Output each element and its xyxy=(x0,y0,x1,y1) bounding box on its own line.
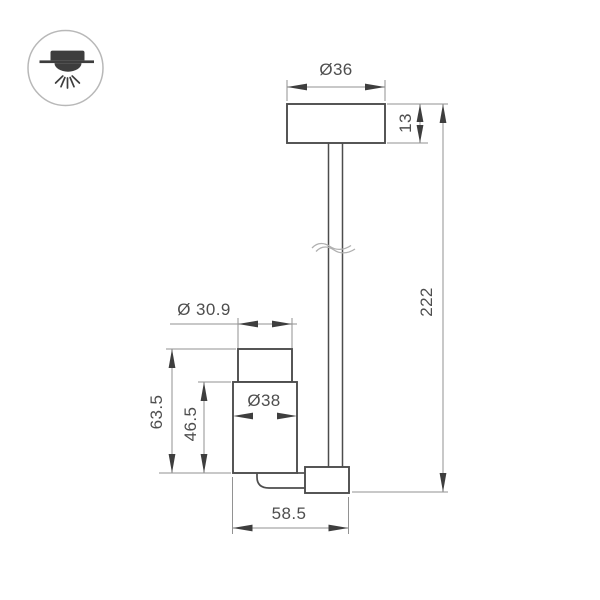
elbow-arm xyxy=(257,473,305,488)
arrow-body-height-bottom xyxy=(201,454,208,473)
arrow-stem-bottom xyxy=(440,473,447,492)
arrow-stem-top xyxy=(440,104,447,123)
arrow-canopy-height-bottom xyxy=(417,125,424,143)
arrow-overall-width-left xyxy=(233,525,253,532)
label-head-overall-height: 63.5 xyxy=(147,395,167,430)
arrow-overall-height-bottom xyxy=(169,454,176,473)
label-head-overall-width: 58.5 xyxy=(272,504,307,524)
label-head-body-height: 46.5 xyxy=(181,407,201,442)
arrow-canopy-left xyxy=(287,84,307,91)
ceiling-light-icon xyxy=(28,31,103,106)
label-canopy-diameter: Ø36 xyxy=(319,60,352,80)
icon-lamp-dome xyxy=(55,63,82,72)
arrow-body-height-top xyxy=(201,382,208,401)
head-top-cylinder xyxy=(238,349,292,382)
label-canopy-height: 13 xyxy=(396,113,416,133)
label-head-body-diameter: Ø38 xyxy=(247,391,280,411)
arrow-overall-height-top xyxy=(169,349,176,368)
label-head-top-diameter: Ø 30.9 xyxy=(177,300,230,320)
arrow-head-top-right xyxy=(272,321,292,328)
arrow-head-top-left xyxy=(238,321,258,328)
canopy-outline xyxy=(287,104,385,143)
arrow-canopy-right xyxy=(365,84,385,91)
arrow-canopy-height-top xyxy=(417,104,424,122)
break-symbol xyxy=(312,244,355,253)
technical-drawing: Ø36 13 222 Ø 30.9 Ø38 63.5 46.5 58.5 xyxy=(0,0,600,600)
label-stem-length: 222 xyxy=(417,287,437,317)
joint-block xyxy=(305,467,349,493)
icon-lamp-body xyxy=(51,51,85,61)
arrow-overall-width-right xyxy=(329,525,349,532)
icon-light-rays xyxy=(56,76,80,88)
icon-ceiling-line xyxy=(40,60,95,63)
fixture-outline xyxy=(233,104,385,493)
